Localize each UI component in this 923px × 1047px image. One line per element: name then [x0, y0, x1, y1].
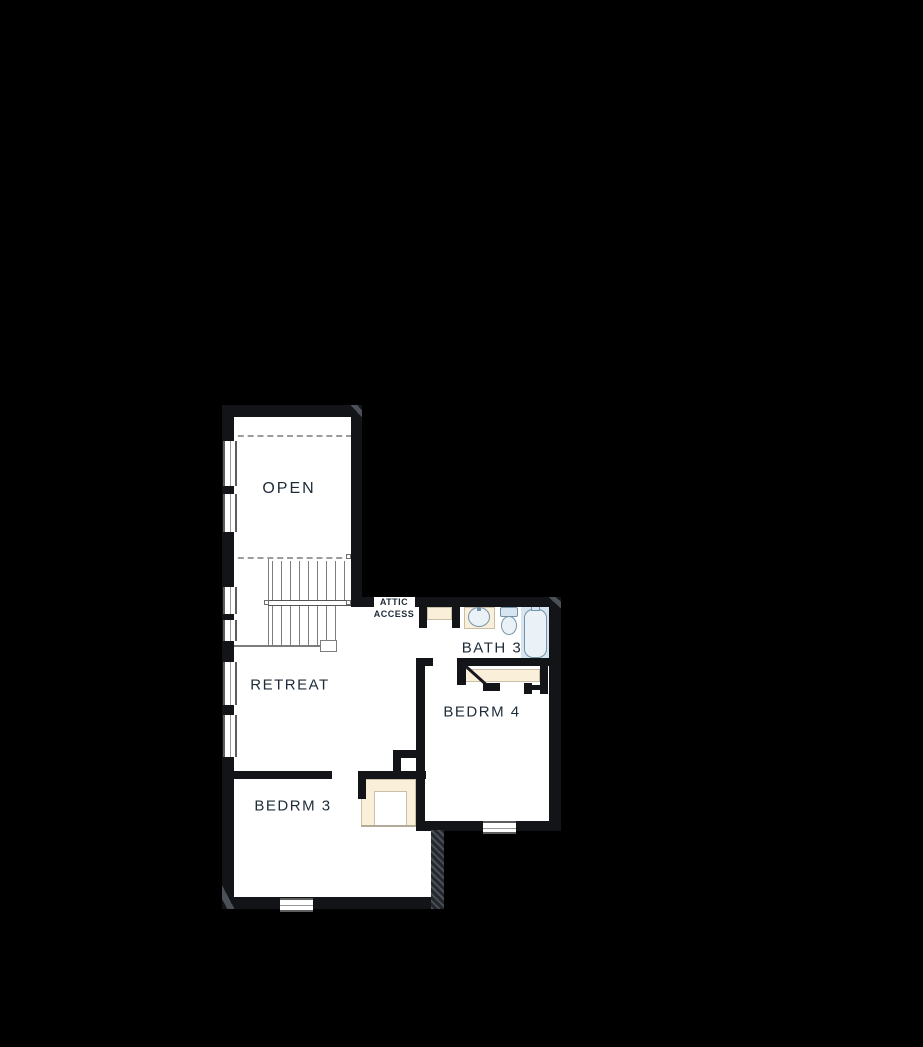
- window: [223, 662, 237, 705]
- wall-retreat-stub: [416, 658, 433, 666]
- wall-bedrm4-closet-crossbar: [530, 685, 542, 690]
- stair-upper-flight-treads: [272, 561, 352, 601]
- wall-corner-chamfer: [549, 597, 561, 608]
- room-label-bedrm4: BEDRM 4: [443, 704, 520, 721]
- room-label-bath3: BATH 3: [462, 640, 522, 657]
- wall-exterior-right: [549, 597, 561, 831]
- stair-newel-post: [264, 600, 269, 605]
- wall-closet-front-stub: [483, 683, 500, 691]
- wall-exterior-top: [222, 405, 362, 417]
- wall-bedrm3-top: [222, 771, 332, 779]
- window: [223, 494, 237, 532]
- wall-hall-closet-top: [393, 750, 425, 758]
- stair-bottom-step: [320, 640, 337, 652]
- bedrm3-closet-edge-line: [361, 825, 416, 827]
- wall-corner-chamfer: [351, 405, 362, 417]
- attic-access-closet-shelf: [427, 607, 452, 620]
- wall-attic-closet-right: [452, 605, 460, 628]
- wall-hatched-bedrm3-right: [431, 830, 444, 909]
- wall-corner-chamfer: [222, 886, 234, 909]
- window: [280, 898, 313, 912]
- stair-bottom-edge: [234, 645, 324, 647]
- window: [223, 441, 237, 486]
- floor-plan: OPEN RETREAT BEDRM 3 BEDRM 4 BATH 3 ATTI…: [0, 0, 923, 1047]
- bathtub: [524, 609, 547, 658]
- room-label-attic-access: ATTIC ACCESS: [374, 596, 415, 620]
- window: [223, 620, 237, 641]
- window: [483, 821, 516, 834]
- floor-plan-page: OPEN RETREAT BEDRM 3 BEDRM 4 BATH 3 ATTI…: [0, 0, 923, 1047]
- room-label-bedrm3: BEDRM 3: [254, 798, 331, 815]
- bedrm3-closet-interior: [374, 791, 407, 827]
- wall-bath-bedrm4-divider: [457, 658, 549, 666]
- open-to-below-dashed-line: [228, 435, 352, 437]
- sink-faucet: [477, 608, 481, 611]
- window: [223, 715, 237, 757]
- toilet-bowl: [501, 616, 517, 635]
- stair-edge-dashed-line: [228, 557, 352, 559]
- wall-exterior-open-right: [351, 405, 362, 607]
- floor-bedrm4-lower: [425, 771, 549, 821]
- wall-attic-closet-left: [419, 605, 427, 628]
- room-label-open: OPEN: [262, 480, 315, 498]
- wall-closet-left-stub: [358, 779, 366, 799]
- wall-retreat-hall: [416, 658, 425, 831]
- attic-label-line2: ACCESS: [374, 608, 415, 620]
- window: [223, 587, 237, 614]
- room-label-retreat: RETREAT: [250, 677, 329, 694]
- attic-label-line1: ATTIC: [374, 596, 415, 608]
- wall-exterior-bedrm3-bottom: [222, 897, 444, 909]
